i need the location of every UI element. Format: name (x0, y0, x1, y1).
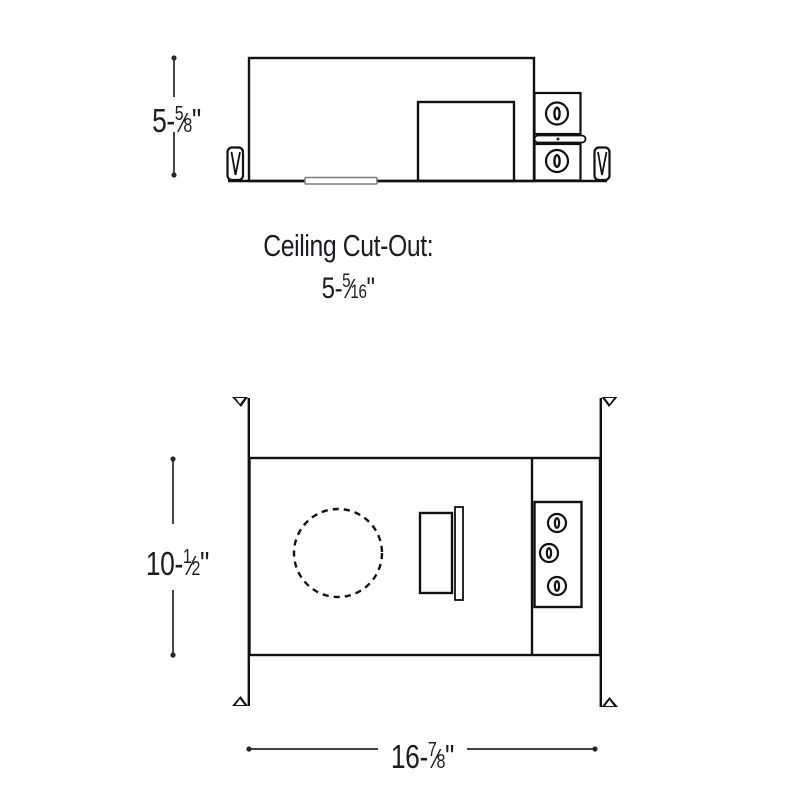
dim-prefix: 16- (390, 738, 427, 775)
dim-fraction-denominator: 2 (191, 558, 200, 580)
dim-endpoint-dot (171, 55, 176, 60)
housing-body-side (249, 58, 534, 181)
dim-unit-mark: " (445, 738, 454, 775)
pill-pivot-dot (557, 138, 560, 141)
dim-fraction-denominator: 8 (183, 115, 192, 137)
dim-prefix: 5- (152, 102, 175, 139)
hanger-bar-slot (305, 178, 377, 185)
ceiling-cutout-dimension: 5-5⁄16" (218, 264, 478, 310)
dimension-text: 5-5⁄8" (152, 96, 201, 144)
knockout-slot (555, 518, 559, 528)
dim-endpoint-dot (170, 652, 175, 657)
dim-fraction-denominator: 16 (350, 282, 366, 303)
dim-unit-mark: " (200, 545, 209, 582)
ceiling-cutout-title-text: Ceiling Cut-Out: (263, 227, 433, 264)
knockout-box-top (535, 93, 581, 134)
dim-prefix: 5- (322, 272, 343, 305)
dim-endpoint-dot (170, 456, 175, 461)
dim-prefix: 10- (145, 545, 182, 582)
knockout-circle (548, 577, 566, 595)
dim-fraction-denominator: 8 (436, 751, 445, 773)
knockout-circle (548, 514, 566, 532)
plan-width-dimension-label: 16-7⁄8" (342, 732, 502, 780)
driver-flange (455, 507, 463, 600)
dimension-text: 10-1⁄2" (145, 539, 208, 587)
ceiling-cutout-callout: Ceiling Cut-Out: 5-5⁄16" (218, 227, 478, 310)
hanger-bar-end-pill (535, 136, 586, 143)
driver-box (420, 513, 452, 593)
dim-unit-mark: " (366, 272, 374, 305)
dim-endpoint-dot (246, 746, 251, 751)
spec-sheet-drawing: 5-5⁄8" Ceiling Cut-Out: 5-5⁄16" 10-1⁄2" … (0, 0, 800, 800)
knockout-slot (555, 581, 559, 591)
junction-box-side (418, 102, 514, 181)
dimension-text: 5-5⁄16" (322, 264, 375, 310)
dim-unit-mark: " (191, 102, 200, 139)
side-height-dimension-label: 5-5⁄8" (96, 96, 256, 144)
dim-endpoint-dot (592, 746, 597, 751)
knockout-circle (540, 544, 558, 562)
ceiling-cutout-title: Ceiling Cut-Out: (218, 227, 478, 264)
knockout-slot (547, 548, 551, 558)
plan-height-dimension-label: 10-1⁄2" (97, 539, 257, 587)
dim-endpoint-dot (171, 172, 176, 177)
ceiling-cutout-circle (294, 509, 382, 597)
dimension-text: 16-7⁄8" (390, 732, 453, 780)
